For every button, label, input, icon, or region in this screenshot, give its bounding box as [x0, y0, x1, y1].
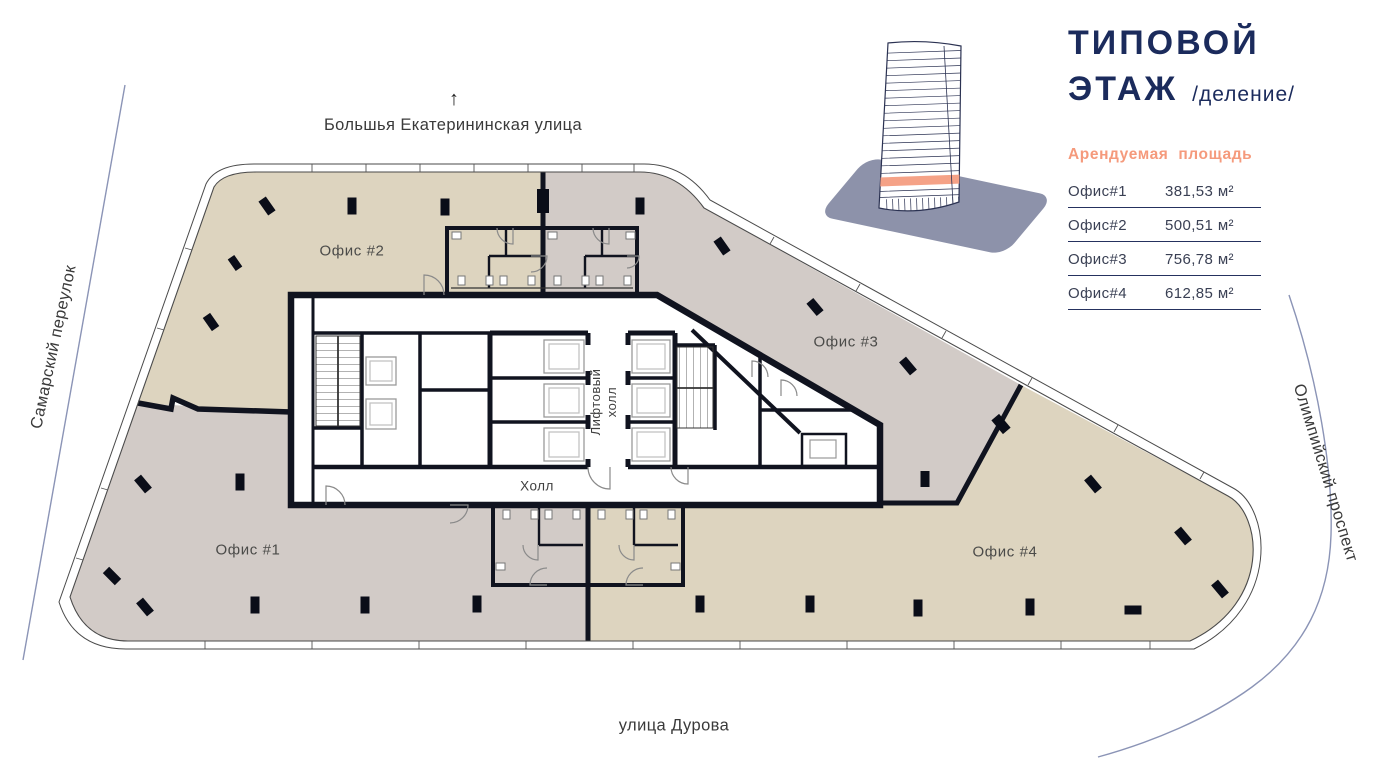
office-area: 381,53 м²	[1165, 183, 1234, 200]
elevator-car	[544, 384, 584, 417]
street-label-top: Большья Екатерининская улица	[324, 116, 582, 135]
legend-table: Офис#1 381,53 м² Офис#2 500,51 м² Офис#3…	[1068, 174, 1261, 310]
legend-row: Офис#1 381,53 м²	[1068, 174, 1261, 208]
room-label-office-2: Офис #2	[320, 243, 385, 260]
page-title-line2: ЭТАЖ /деление/	[1068, 72, 1295, 106]
office-area: 612,85 м²	[1165, 285, 1234, 302]
building-icon	[818, 42, 1053, 256]
office-name: Офис#1	[1068, 183, 1127, 200]
legend-title: Арендуемая площадь	[1068, 146, 1252, 164]
service-elevator-car	[366, 399, 396, 429]
elevator-car	[544, 340, 584, 373]
page-title-suffix: /деление/	[1192, 83, 1295, 106]
legend-row: Офис#2 500,51 м²	[1068, 208, 1261, 242]
office-name: Офис#2	[1068, 217, 1127, 234]
office-name: Офис#3	[1068, 251, 1127, 268]
stairs-left	[316, 336, 360, 426]
room-label-lift-hall: Лифтовый холл	[588, 368, 621, 436]
office-area: 756,78 м²	[1165, 251, 1234, 268]
legend-row: Офис#4 612,85 м²	[1068, 276, 1261, 310]
room-label-hall: Холл	[520, 479, 554, 494]
service-elevator-car	[366, 357, 396, 385]
office-name: Офис#4	[1068, 285, 1127, 302]
floor-plan-page: { "header": { "title_line1": "ТИПОВОЙ", …	[0, 0, 1378, 766]
elevator-car	[632, 340, 670, 373]
elevator-car	[632, 428, 670, 461]
elevator-car	[632, 384, 670, 417]
north-arrow-icon: ↑	[449, 88, 459, 111]
room-label-office-4: Офис #4	[973, 544, 1038, 561]
office-area: 500,51 м²	[1165, 217, 1234, 234]
room-label-office-1: Офис #1	[216, 542, 281, 559]
legend-row: Офис#3 756,78 м²	[1068, 242, 1261, 276]
floor-plan-drawing	[0, 0, 1378, 766]
page-title-line1: ТИПОВОЙ	[1068, 24, 1260, 63]
stairs-right	[677, 347, 713, 428]
page-title-word: ЭТАЖ	[1068, 72, 1178, 106]
street-label-bottom: улица Дурова	[619, 717, 729, 736]
room-label-office-3: Офис #3	[814, 334, 879, 351]
elevator-car	[544, 428, 584, 461]
